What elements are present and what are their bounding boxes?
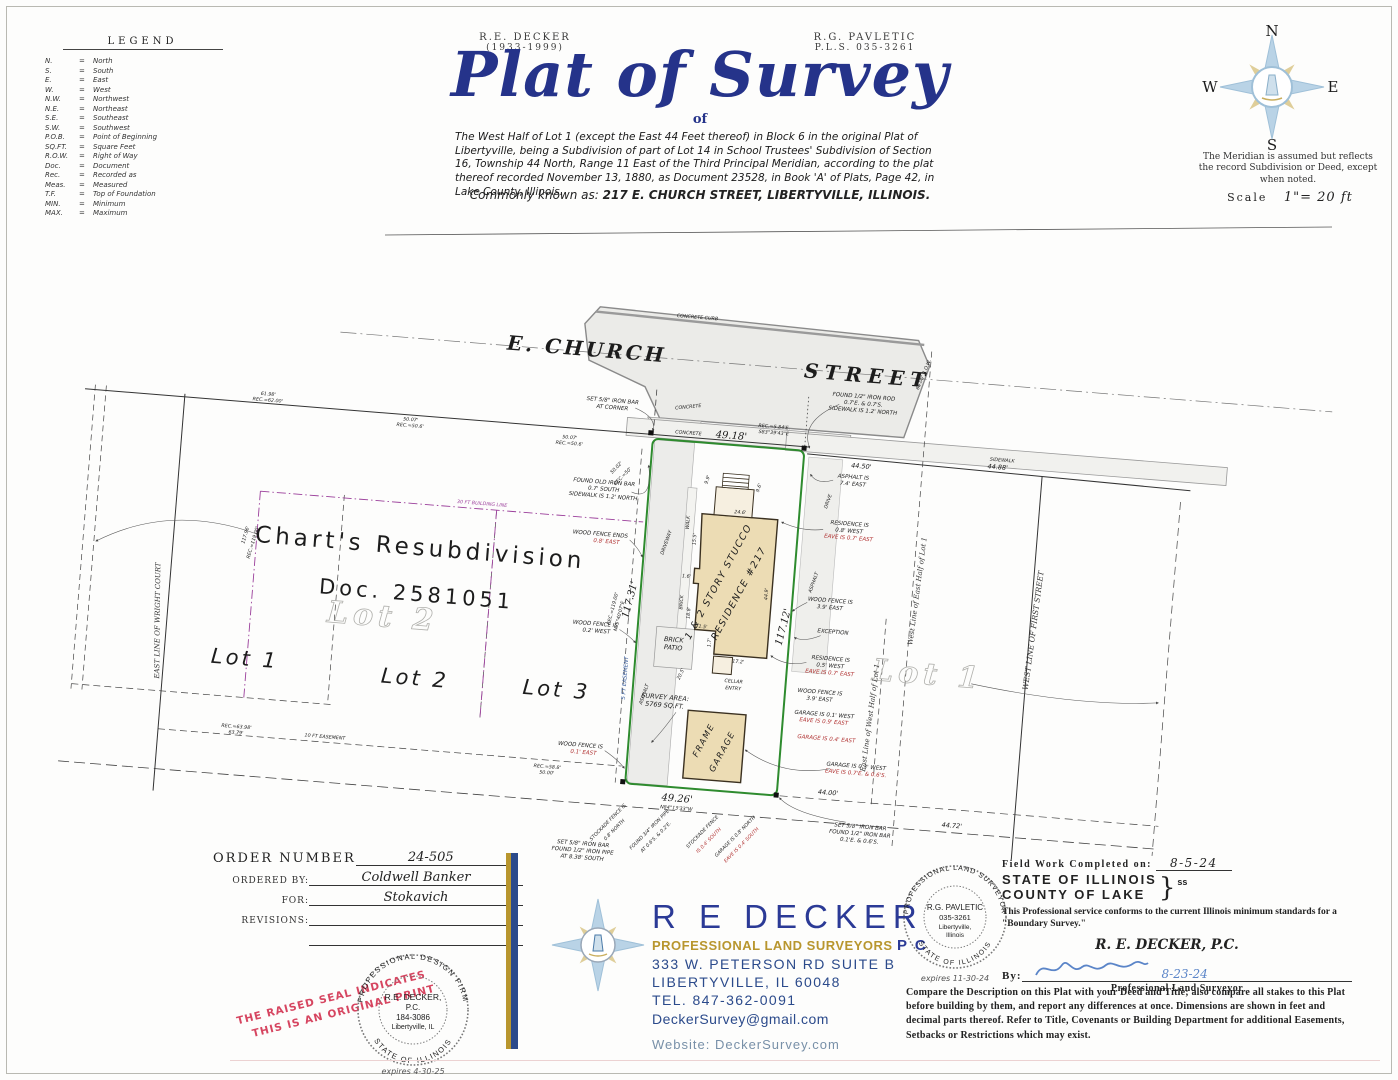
surveyor-seal-city: Libertyville, [939, 924, 972, 931]
by-label: By: [1002, 970, 1022, 982]
lot1-south-line [71, 684, 333, 705]
north-row-line [385, 227, 1332, 235]
lot1-ghost-label: Lot 1 [870, 653, 985, 697]
easement-10ft-label: 10 FT EASEMENT [304, 733, 346, 742]
state-line: STATE OF ILLINOIS [1002, 873, 1157, 888]
dim-49-26: 49.26' [660, 792, 693, 806]
county-line: COUNTY OF LAKE [1002, 888, 1157, 903]
wood-fence-ends-red: 0.8' EAST [593, 538, 620, 546]
legend-entry: MAX.=Maximum [45, 209, 240, 219]
wood-fence-02-2: 0.2' WEST [582, 627, 611, 635]
wood-fence-01-red: 0.1' EAST [570, 749, 597, 757]
porch-steps [722, 473, 749, 489]
svg-text:STATE OF ILLINOIS: STATE OF ILLINOIS [917, 940, 993, 967]
set-bar-corner-2: AT CORNER [595, 404, 628, 413]
legend-entry: T.F.=Top of Foundation [45, 190, 240, 200]
title-of: of [420, 112, 980, 127]
design-seal-name: R.E. DECKER, [385, 992, 442, 1002]
plat-of-survey-sheet: LEGEND N.=NorthS.=SouthE.=EastW.=WestN.W… [0, 0, 1398, 1080]
dim-15-5: 15.5' [691, 533, 698, 545]
legend-title: LEGEND [63, 36, 223, 50]
east-dashed-line [1152, 502, 1180, 856]
rec-6398-1: REC.=63.98' [221, 723, 252, 731]
legend-entry: P.O.B.=Point of Beginning [45, 133, 240, 143]
compass-w: W [1202, 78, 1218, 96]
signature-glyph [1032, 955, 1152, 981]
compass-rose: N E S W [1200, 22, 1345, 152]
design-seal-city: Libertyville, IL [392, 1024, 435, 1031]
rec-588-2: 50.00' [539, 769, 554, 776]
dim-50-07a-2: REC.=50.6' [396, 422, 424, 430]
asphalt-drive-surface [792, 457, 843, 674]
brace-glyph: } [1159, 873, 1176, 903]
cellar-label-2: ENTRY [725, 685, 742, 692]
dim-24-6: 24.6' [734, 509, 746, 516]
firm-name: R. E. DECKER, P.C. [1002, 937, 1332, 953]
dim-44-72: 44.72' [941, 821, 962, 831]
certification-block: Field Work Completed on: 8-5-24 STATE OF… [1002, 856, 1382, 994]
company-block: R E DECKER PROFESSIONAL LAND SURVEYORS P… [652, 898, 928, 1052]
monument-nw [648, 430, 653, 435]
compass-n: N [1265, 22, 1278, 40]
dim-44-00: 44.00' [818, 788, 839, 798]
legend-entry: S.W.=Southwest [45, 124, 240, 134]
monument-sw [620, 779, 625, 784]
compass-s: S [1267, 136, 1277, 152]
company-city: LIBERTYVILLE, IL 60048 [652, 973, 928, 991]
scale-value: 1"= 20 ft [1284, 190, 1353, 205]
meridian-note: The Meridian is assumed but reflects the… [1198, 152, 1378, 186]
surveyor-seal-ring-bottom: STATE OF ILLINOIS [917, 940, 993, 967]
surveyor-seal-name: R.G. PAVLETIC [927, 903, 983, 912]
compass-e: E [1328, 78, 1339, 96]
dim-44-9: 44.9' [763, 588, 770, 600]
residence-building [688, 513, 778, 658]
ss-label: ss [1177, 877, 1187, 887]
dim-9-9: 9.9' [703, 475, 712, 485]
legend-entry: N.W.=Northwest [45, 95, 240, 105]
dim-17-2: 17.2' [732, 659, 744, 666]
cellar-label-1: CELLAR [724, 678, 743, 685]
asphalt-74-2: 7.4' EAST [840, 481, 867, 489]
field-work-label: Field Work Completed on: [1002, 859, 1152, 870]
state-county-block: STATE OF ILLINOIS COUNTY OF LAKE } ss [1002, 873, 1382, 903]
scan-line-artifact [230, 1060, 1380, 1061]
dim-44-50: 44.50' [851, 461, 872, 471]
company-address: 333 W. PETERSON RD SUITE B [652, 955, 928, 973]
accent-bar [506, 853, 518, 1049]
property-address: 217 E. CHURCH STREET, LIBERTYVILLE, ILLI… [603, 188, 931, 202]
legend-entries: N.=NorthS.=SouthE.=EastW.=WestN.W.=North… [45, 57, 240, 219]
signature-row: By: 8-23-24 [1002, 955, 1352, 982]
west-line-east-half-label: West Line of East Half of Lot 1 [906, 537, 928, 646]
easement-5ft-label: 5 FT EASEMENT [621, 656, 631, 700]
surveyor-seal: PROFESSIONAL LAND SURVEYOR STATE OF ILLI… [897, 862, 1012, 984]
ordered-by-value: Coldwell Banker [309, 870, 523, 886]
company-website: Website: DeckerSurvey.com [652, 1037, 928, 1052]
surveyor-seal-number: 035-3261 [939, 913, 971, 922]
survey-drawing: E. CHURCH STREET CONCRETE CURB 66.00' R.… [0, 225, 1398, 885]
res-05-red: EAVE IS 0.7' EAST [805, 668, 855, 678]
legend-entry: E.=East [45, 76, 240, 86]
commonly-known: Commonly known as: 217 E. CHURCH STREET,… [430, 188, 970, 202]
signature-line: 8-23-24 [1022, 955, 1353, 982]
brick-label: BRICK [678, 594, 685, 610]
legend-entry: SQ.FT.=Square Feet [45, 143, 240, 153]
legend-entry: Meas.=Measured [45, 181, 240, 191]
company-logo [548, 895, 648, 995]
design-firm-seal: PROFESSIONAL DESIGN FIRM STATE OF ILLINO… [348, 948, 478, 1076]
revisions-extra-line [309, 930, 523, 946]
legend-entry: S.E.=Southeast [45, 114, 240, 124]
charts-resubdivision-label: Chart's Resubdivision [254, 522, 586, 574]
conformance-statement: This Professional service conforms to th… [1002, 906, 1342, 931]
dim-61-98-2: REC.=62.00' [252, 396, 283, 404]
rec-588-1: REC.=58.8' [533, 763, 561, 771]
dim-1-7: 1.7' [706, 638, 713, 647]
legend-entry: Rec.=Recorded as [45, 171, 240, 181]
garage-04-red: GARAGE IS 0.4' EAST [797, 734, 856, 745]
surveyor-seal-expires: expires 11-30-24 [921, 974, 989, 983]
east-line-west-half-label: East Line of West Half of Lot 1 [859, 663, 881, 773]
monument-se [774, 792, 779, 797]
design-seal-expires: expires 4-30-25 [381, 1067, 444, 1076]
design-seal-pc: P.C. [406, 1003, 421, 1012]
wood-fence-39b-2: 3.9' EAST [806, 696, 833, 704]
order-block: ORDER NUMBER 24-505 ORDERED BY: Coldwell… [213, 850, 523, 946]
rec-5002-1: 50.02' [609, 461, 624, 476]
company-phone: TEL. 847-362-0091 [652, 991, 928, 1009]
signature-date: 8-23-24 [1162, 967, 1208, 981]
dim-44-88: 44.88' [987, 462, 1008, 472]
surveyor-seal-state: Illinois [946, 932, 965, 939]
wright-court-label: EAST LINE OF WRIGHT COURT [153, 561, 162, 680]
scale-label: Scale [1227, 191, 1267, 204]
for-value: Stokavich [309, 890, 523, 906]
for-label: FOR: [213, 896, 309, 906]
cellar-entry-structure [712, 656, 732, 674]
revisions-value [309, 910, 523, 926]
dim-50-07b-1: 50.07' [562, 434, 577, 441]
order-number-label: ORDER NUMBER [213, 851, 356, 866]
rec-6398-2: 63.79' [228, 729, 243, 736]
legend-entry: Doc.=Document [45, 162, 240, 172]
order-number-value: 24-505 [356, 850, 506, 866]
dim-50-07b-2: REC.=50.6' [555, 440, 583, 448]
west-dashed-1 [71, 385, 95, 689]
lot3-label: Lot 3 [522, 675, 592, 704]
dim-1-5: 1.5' [698, 624, 707, 631]
dim-117-96-1: 117.96' [240, 525, 251, 544]
company-email: DeckerSurvey@gmail.com [652, 1010, 928, 1028]
legend-entry: N.E.=Northeast [45, 105, 240, 115]
ordered-by-label: ORDERED BY: [213, 876, 309, 886]
dim-117-31: 117.31' [620, 580, 640, 619]
lot2-label: Lot 2 [380, 664, 450, 693]
legend-entry: W.=West [45, 86, 240, 96]
lot1-label: Lot 1 [210, 644, 280, 673]
company-name: R E DECKER [652, 898, 928, 936]
dim-9-6: 9.6' [755, 483, 764, 493]
dim-1-6: 1.6' [682, 573, 691, 580]
revisions-label: REVISIONS: [213, 916, 309, 926]
legend-entry: N.=North [45, 57, 240, 67]
monument-ne [801, 445, 806, 450]
design-seal-number: 184-3086 [396, 1013, 430, 1022]
legend: LEGEND N.=NorthS.=SouthE.=EastW.=WestN.W… [45, 36, 240, 219]
dim-20-5: 20.5' [676, 667, 686, 680]
brick-patio-label-2: PATIO [664, 643, 683, 652]
rotated-plan: E. CHURCH STREET CONCRETE CURB 66.00' R.… [50, 266, 1335, 885]
dim-18-8: 18.8' [686, 607, 693, 619]
page-title: Plat of Survey [420, 38, 980, 111]
dim-61-98-1: 61.98' [260, 391, 275, 398]
company-tagline: PROFESSIONAL LAND SURVEYORS [652, 938, 893, 953]
walk-label: WALK [685, 515, 692, 530]
dim-50-07a-1: 50.07' [403, 416, 418, 423]
legend-entry: S.=South [45, 67, 240, 77]
field-work-date: 8-5-24 [1156, 856, 1232, 871]
west-dashed-2 [82, 385, 106, 689]
legend-entry: R.O.W.=Right of Way [45, 152, 240, 162]
legend-entry: MIN.=Minimum [45, 200, 240, 210]
scale-note: Scale 1"= 20 ft [1205, 190, 1375, 205]
commonly-prefix: Commonly known as: [470, 188, 599, 202]
notice-paragraph: Compare the Description on this Plat wit… [906, 986, 1346, 1043]
